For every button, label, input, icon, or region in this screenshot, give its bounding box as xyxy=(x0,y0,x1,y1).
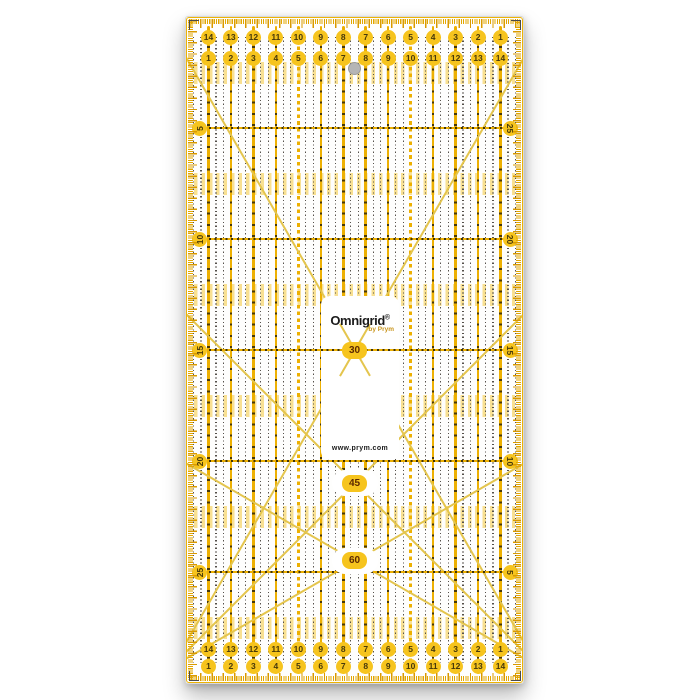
omnigrid-ruler: Omnigrid® by Prym www.prym.com 304560 14… xyxy=(185,16,524,684)
product-photo: Omnigrid® by Prym www.prym.com 304560 14… xyxy=(0,0,700,700)
corner-mark-bottom-left xyxy=(189,671,199,681)
corner-mark-top-left xyxy=(189,20,199,30)
corner-mark-bottom-right xyxy=(511,671,521,681)
corner-mark-top-right xyxy=(511,20,521,30)
corner-marks xyxy=(186,17,523,683)
